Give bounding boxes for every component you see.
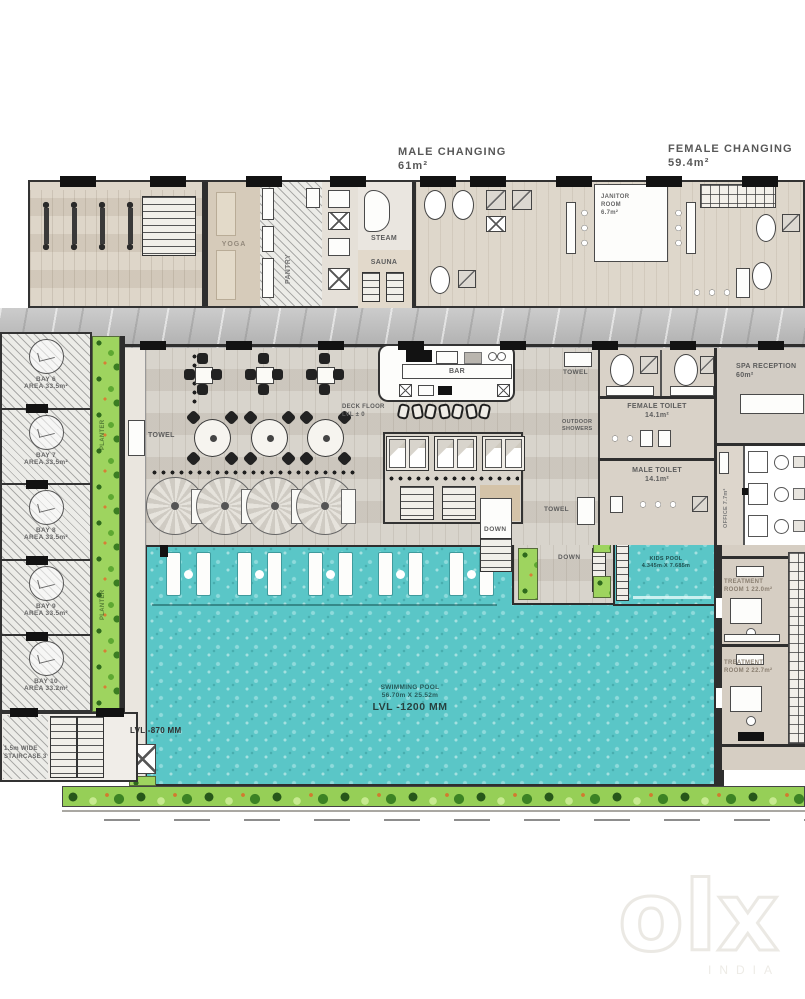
bar-equipment <box>438 386 452 395</box>
bar-equipment <box>418 385 434 396</box>
square-tables <box>183 352 345 398</box>
umbrella-loungers <box>146 477 362 541</box>
yoga-mat <box>216 192 236 236</box>
male-changing-name: MALE CHANGING <box>398 146 506 158</box>
wall <box>743 446 745 545</box>
round-tables <box>185 410 353 468</box>
sink-row <box>608 432 638 445</box>
outdoor-line2: SHOWERS <box>562 426 593 432</box>
vanity-counter <box>670 386 714 396</box>
female-changing-label: FEMALE CHANGING 59.4m² <box>668 143 793 171</box>
sun-daybed <box>442 486 476 520</box>
stool <box>424 403 438 420</box>
wall-opening-block <box>140 341 166 350</box>
treatment-2-line1: TREATMENT <box>724 660 763 666</box>
counter <box>738 732 764 741</box>
pool-ledge-line <box>152 604 497 606</box>
stool <box>397 403 411 420</box>
fixture <box>328 212 350 230</box>
sink-row <box>690 286 732 299</box>
shower-stall <box>458 270 476 288</box>
fixture <box>328 268 350 290</box>
sstall <box>482 436 525 471</box>
treatment-1-label: TREATMENT ROOM 1 22.0m² <box>724 579 772 595</box>
wall-opening-block <box>758 341 784 350</box>
shower-stall <box>512 190 532 210</box>
massage-bed <box>730 686 762 712</box>
gm <box>36 198 56 254</box>
staircase-label: 1.5m WIDE STAIRCASE 3 <box>4 746 47 762</box>
fixture <box>328 238 350 256</box>
fixture <box>486 216 506 232</box>
property-dashed-line <box>104 819 805 821</box>
staircase-line1: 1.5m WIDE <box>4 746 38 752</box>
bay-area: AREA 33.5m² <box>2 610 90 617</box>
pantry-counter <box>306 188 320 208</box>
toilet-fixture <box>430 266 450 294</box>
gm <box>92 198 112 254</box>
planter-box <box>593 576 611 598</box>
wall <box>598 396 716 399</box>
janitor-area: 6.7m² <box>601 210 618 216</box>
stool <box>464 403 477 420</box>
changing-bench <box>566 202 576 254</box>
toilet-fixture <box>424 190 446 220</box>
wall-opening-block <box>330 176 366 187</box>
planter-label: PLANTER <box>100 560 108 620</box>
stool <box>410 403 423 420</box>
umb <box>296 477 354 535</box>
outdoor-showers-label: OUTDOOR SHOWERS <box>562 419 593 433</box>
down-label-2: DOWN <box>558 554 581 562</box>
deck-floor-line1: DECK FLOOR <box>342 404 385 410</box>
male-changing-label: MALE CHANGING 61m² <box>398 146 506 174</box>
outdoor-line1: OUTDOOR <box>562 419 592 425</box>
plg <box>237 551 282 597</box>
wall-opening-block <box>10 708 38 717</box>
wall-opening-block <box>26 480 48 489</box>
bay-marker-icon <box>29 415 64 450</box>
wall <box>716 545 722 770</box>
kids-pool-name: KIDS POOL <box>620 556 712 563</box>
bar-equipment <box>497 352 506 361</box>
bar-equipment <box>436 351 458 364</box>
spa-reception-area: 60m² <box>736 372 754 379</box>
bath-fixture <box>610 354 634 386</box>
wall-opening-block <box>470 176 506 187</box>
bay-name: BAY 10 <box>2 678 90 685</box>
gm <box>120 198 140 254</box>
toilet-fixture <box>452 190 474 220</box>
pool-anchor <box>160 545 168 557</box>
female-toilet-area: 14.1m² <box>645 412 669 419</box>
bay-name: BAY 9 <box>2 603 90 610</box>
steam-label: STEAM <box>356 234 412 243</box>
stairs-down <box>480 538 512 572</box>
shelf <box>724 634 780 642</box>
reception-desk <box>740 394 804 414</box>
sauna-bench <box>362 272 380 302</box>
yoga-label: YOGA <box>208 240 260 249</box>
plg <box>166 551 211 597</box>
door-gap <box>716 598 722 618</box>
deck-floor-label: DECK FLOOR LVL ± 0 <box>342 404 385 420</box>
bar-equipment <box>406 350 432 362</box>
bay-6: BAY 6AREA 33.5m² <box>2 334 90 410</box>
wall-opening-block <box>398 341 424 350</box>
pool-label: SWIMMING POOL 56.70m X 25.52m LVL -1200 … <box>330 684 490 715</box>
janitor-line1: JANITOR <box>601 194 629 200</box>
bay-stack: BAY 6AREA 33.5m² BAY 7AREA 33.5m² BAY 8A… <box>0 332 92 712</box>
changing-bench <box>686 202 696 254</box>
treatment-1-line2: ROOM 1 22.0m² <box>724 587 772 593</box>
shower-stall <box>700 356 714 374</box>
sqtable <box>183 352 223 396</box>
gm <box>64 198 84 254</box>
deck-level-label: LVL -870 MM <box>130 726 181 736</box>
pool-name: SWIMMING POOL <box>330 684 490 692</box>
female-toilet-name: FEMALE TOILET <box>627 403 686 410</box>
pool-level: LVL -1200 MM <box>330 701 490 715</box>
male-toilet-area: 14.1m² <box>645 476 669 483</box>
shower-stall <box>782 214 800 232</box>
wall-opening-block <box>26 404 48 413</box>
rtable <box>242 410 297 466</box>
stair-divider <box>76 716 78 778</box>
kids-pool-ledge <box>633 596 711 599</box>
hedge <box>387 474 519 483</box>
headboard <box>736 566 764 577</box>
spa-reception-label: SPA RECEPTION 60m² <box>736 362 796 380</box>
fixture <box>736 268 750 298</box>
lockers <box>700 184 776 208</box>
female-changing-area: 59.4m² <box>668 157 709 169</box>
pstation <box>746 514 805 538</box>
bay-10: BAY 10AREA 33.2m² <box>2 636 90 710</box>
wall-opening-block <box>150 176 186 187</box>
wall-opening-block <box>420 176 456 187</box>
pantry-counter <box>262 188 274 220</box>
wc-fixture <box>610 496 623 513</box>
bay-marker-icon <box>29 339 64 374</box>
bay-marker-icon <box>29 566 64 601</box>
bay-9: BAY 9AREA 33.5m² <box>2 561 90 637</box>
sun-daybed <box>400 486 434 520</box>
pantry-label: PANTRY <box>284 222 293 284</box>
olx-country: INDIA <box>708 963 780 977</box>
plg <box>378 551 423 597</box>
sqtable <box>244 352 284 396</box>
wall-opening-block <box>318 341 344 350</box>
sstall <box>386 436 429 471</box>
towel-label-1: TOWEL <box>148 431 175 440</box>
down-label-1: DOWN <box>484 526 507 534</box>
bay-name: BAY 6 <box>2 376 90 383</box>
sqtable <box>305 352 345 396</box>
bar-sink <box>399 384 412 397</box>
towel-label-3: TOWEL <box>544 506 569 514</box>
sstall <box>434 436 477 471</box>
wall-opening-block <box>592 341 618 350</box>
wall-opening-block <box>500 341 526 350</box>
treatment-2-label: TREATMENT ROOM 2 22.7m² <box>724 660 772 676</box>
wall-opening-block <box>60 176 96 187</box>
plg <box>308 551 353 597</box>
bay-8: BAY 8AREA 33.5m² <box>2 485 90 561</box>
bay-7: BAY 7AREA 33.5m² <box>2 410 90 486</box>
floor-plan: MALE CHANGING 61m² FEMALE CHANGING 59.4m… <box>0 0 805 999</box>
bath-fixture <box>674 354 698 386</box>
bar-equipment <box>464 352 482 364</box>
sauna-bench <box>386 272 404 302</box>
urinal-row <box>636 498 681 511</box>
wall-opening-block <box>26 556 48 565</box>
stool-row <box>578 206 591 252</box>
kids-pool-label: KIDS POOL 4.345m X 7.685m <box>620 556 712 570</box>
janitor-line2: ROOM <box>601 202 621 208</box>
pool-loungers <box>166 551 494 597</box>
steam-bench <box>364 190 390 232</box>
fixture <box>328 190 350 208</box>
outdoor-showers <box>386 436 520 471</box>
male-changing-area: 61m² <box>398 160 428 172</box>
towel-cabinet <box>128 420 145 456</box>
bay-area: AREA 33.5m² <box>2 459 90 466</box>
spa-reception-name: SPA RECEPTION <box>736 363 796 370</box>
wall <box>660 350 662 396</box>
bay-marker-icon <box>29 641 64 676</box>
staircase-line2: STAIRCASE 3 <box>4 754 47 760</box>
shower-stall <box>640 356 658 374</box>
olx-logo: olx <box>618 861 779 973</box>
pedicure-stations <box>746 450 805 542</box>
wall-opening-block <box>742 176 778 187</box>
sauna-label: SAUNA <box>356 258 412 267</box>
bay-area: AREA 33.5m² <box>2 383 90 390</box>
towel-label-2: TOWEL <box>563 369 588 377</box>
planter-label: PLANTER <box>100 390 108 450</box>
treatment-2-line2: ROOM 2 22.7m² <box>724 668 772 674</box>
stool <box>451 403 465 420</box>
bar-label: BAR <box>402 367 512 376</box>
stool <box>478 403 492 420</box>
pstation <box>746 450 805 474</box>
wall-opening-block <box>96 708 124 717</box>
pantry-counter <box>262 258 274 298</box>
lockers <box>788 552 805 744</box>
bar-equipment <box>488 352 497 361</box>
wall-opening-block <box>646 176 682 187</box>
male-toilet-name: MALE TOILET <box>632 467 682 474</box>
wall-opening-block <box>556 176 592 187</box>
treatment-1-line1: TREATMENT <box>724 579 763 585</box>
pantry-counter <box>262 226 274 252</box>
bay-marker-icon <box>29 490 64 525</box>
janitor-label: JANITOR ROOM 6.7m² <box>601 194 629 217</box>
kids-pool-dims: 4.345m X 7.685m <box>620 563 712 570</box>
olx-watermark: olx INDIA <box>612 858 805 983</box>
female-toilet-label: FEMALE TOILET 14.1m² <box>598 402 716 420</box>
rtable <box>185 410 240 466</box>
stool <box>437 403 450 420</box>
female-changing-name: FEMALE CHANGING <box>668 143 793 155</box>
bay-area: AREA 33.2m² <box>2 685 90 692</box>
bar-sink <box>497 384 510 397</box>
wc-fixture <box>640 430 653 447</box>
door-gap <box>716 688 722 708</box>
shower-stall <box>692 496 708 512</box>
wall <box>598 458 716 461</box>
yoga-mat <box>216 250 236 300</box>
bay-name: BAY 8 <box>2 527 90 534</box>
wall-opening-block <box>246 176 282 187</box>
wall <box>722 744 805 747</box>
towel-cabinet <box>564 352 592 367</box>
gym-equipment <box>36 198 140 256</box>
planter-strip-bottom <box>62 786 805 807</box>
toilet-fixture <box>756 214 776 242</box>
bay-area: AREA 33.5m² <box>2 534 90 541</box>
bay-name: BAY 7 <box>2 452 90 459</box>
bar-stools <box>398 404 490 420</box>
stool-row <box>672 206 685 252</box>
wc-fixture <box>658 430 671 447</box>
planter-box <box>518 548 538 600</box>
wall-opening-block <box>26 632 48 641</box>
weight-rack <box>142 196 196 256</box>
shower-stall <box>486 190 506 210</box>
boundary-line <box>62 810 805 812</box>
toilet-fixture <box>752 262 772 290</box>
massage-bed <box>730 598 762 624</box>
male-toilet-label: MALE TOILET 14.1m² <box>598 466 716 484</box>
deck-floor-line2: LVL ± 0 <box>342 412 365 418</box>
pstation <box>746 482 805 506</box>
stool <box>746 716 756 726</box>
wall-opening-block <box>670 341 696 350</box>
wall-opening-block <box>226 341 252 350</box>
office-desk <box>719 452 729 474</box>
vanity-counter <box>606 386 654 396</box>
towel-cabinet <box>577 497 595 525</box>
pool-dims: 56.70m X 25.52m <box>330 692 490 700</box>
